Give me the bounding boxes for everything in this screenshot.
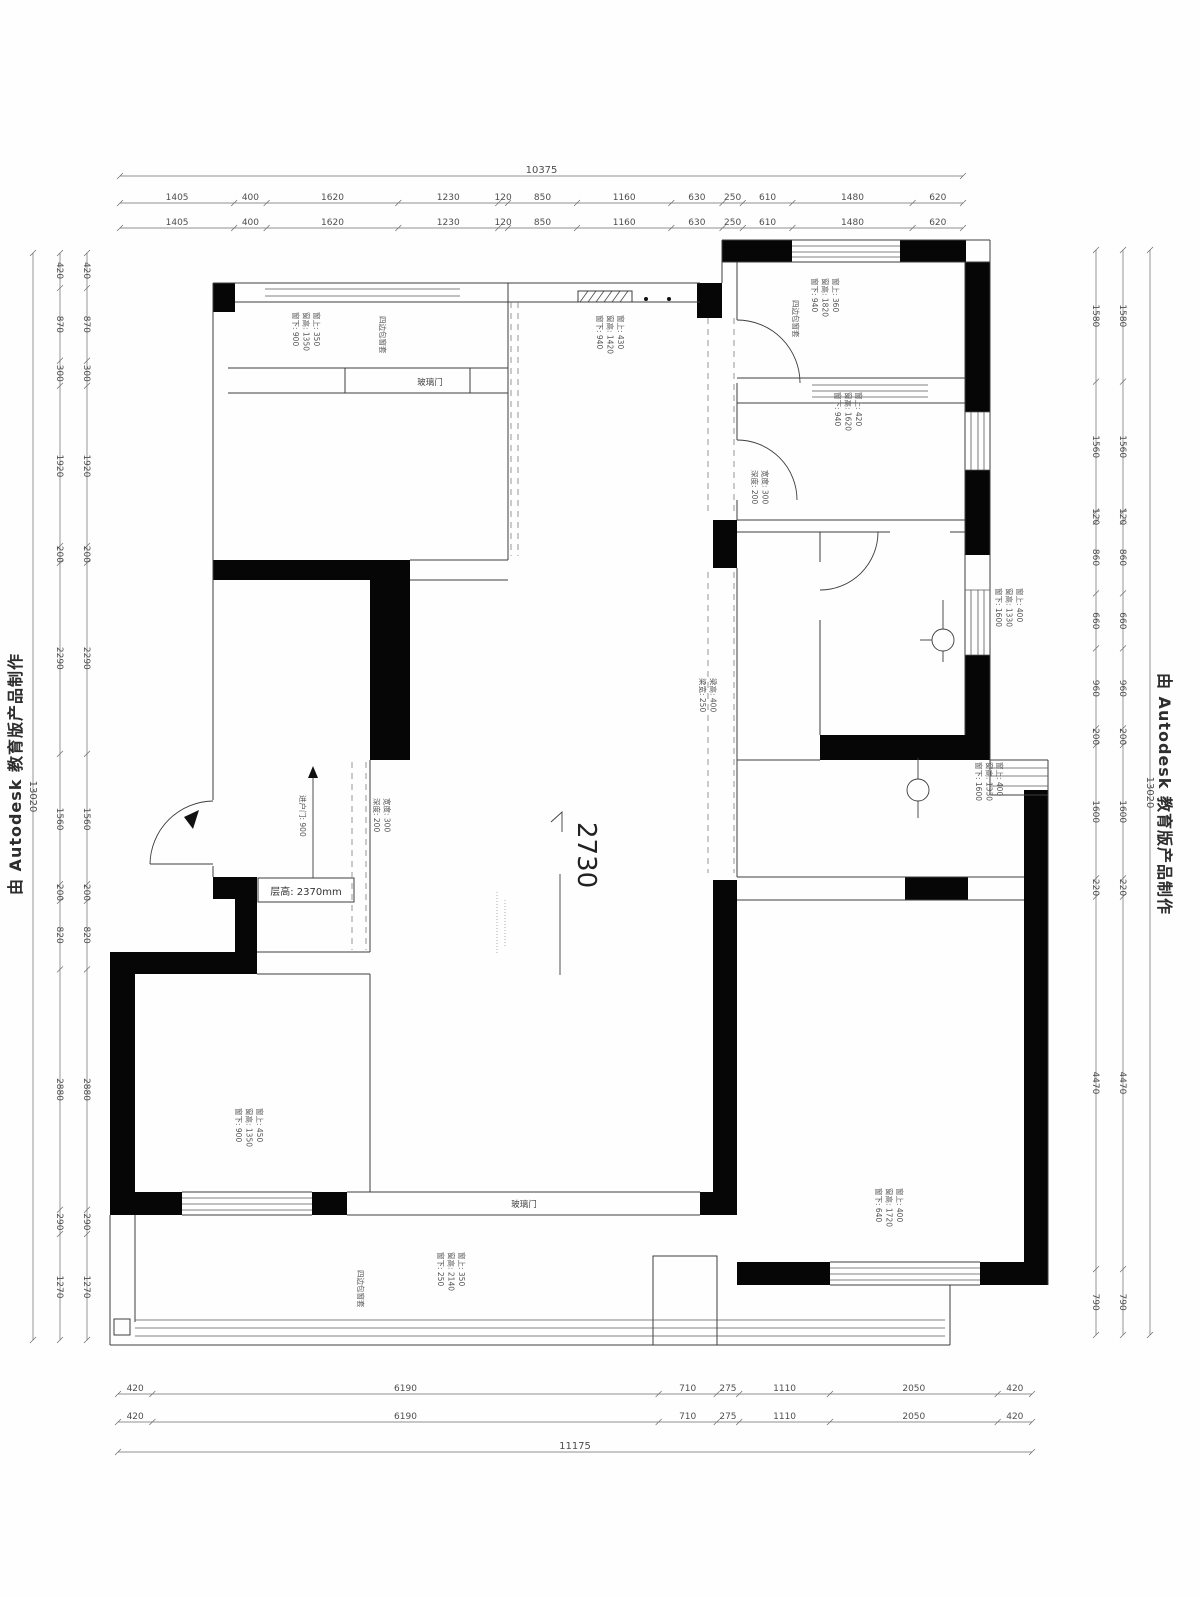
casing-note-top-right: 四边包窗套	[791, 300, 801, 338]
annotation-text: 窗下: 640	[874, 1188, 884, 1222]
annotation-text: 窗上: 430	[616, 315, 626, 349]
casing-note-top-left: 四边包窗套	[378, 316, 388, 354]
annotation-text: 窗高: 1330	[985, 762, 995, 801]
dim-label: 1230	[437, 218, 460, 228]
curtain-box-note-hall: 宽度: 300深度: 200	[372, 798, 393, 832]
entry-arrow-icon	[184, 810, 199, 829]
door-arc	[820, 532, 878, 590]
dim-label: 870	[81, 316, 91, 333]
floor-plan-svg: 10375 1405400162012301208501160630250610…	[0, 0, 1200, 1598]
dim-label: 420	[54, 262, 64, 279]
dim-chain-left-1: 4208703001920200229015602008202880290127…	[54, 250, 64, 1343]
dim-label: 790	[1117, 1293, 1127, 1310]
annotation-text: 窗上: 420	[854, 392, 864, 426]
dim-label: 1480	[841, 218, 864, 228]
dim-label: 1160	[613, 218, 636, 228]
dim-label: 1600	[1117, 800, 1127, 823]
dim-label: 1620	[321, 218, 344, 228]
dim-label: 420	[1006, 1412, 1023, 1422]
dim-label: 200	[54, 884, 64, 901]
dim-label: 1270	[81, 1276, 91, 1299]
dim-chain-bottom-2: 420619071027511102050420	[115, 1412, 1035, 1425]
casing-note-balcony: 四边包窗套	[356, 1270, 366, 1308]
dim-label: 400	[242, 218, 259, 228]
dim-label: 2290	[54, 647, 64, 670]
dim-label: 6190	[394, 1412, 417, 1422]
annotation-text: 窗上: 400	[895, 1188, 905, 1222]
dim-label: 1580	[1090, 304, 1100, 327]
dim-label: 2050	[902, 1412, 925, 1422]
annotation-text: 四边包窗套	[791, 300, 801, 338]
window-note-kitchen: 窗上: 430窗高: 1420窗下: 940	[595, 315, 626, 354]
dim-label: 1560	[81, 808, 91, 831]
dim-chain-right-2: 1580156012086066096020016002204470790	[1117, 247, 1127, 1338]
window-note-right-mid-2: 窗上: 400窗高: 1330窗下: 1600	[974, 762, 1005, 801]
dim-label: 960	[1117, 680, 1127, 697]
dim-label: 1110	[773, 1384, 796, 1394]
window-note-top-left: 窗上: 350窗高: 1350窗下: 900	[291, 312, 322, 351]
annotation-text: 窗高: 1330	[1005, 588, 1015, 627]
annotation-text: 窗下: 940	[810, 278, 820, 312]
dim-label: 13020	[1144, 777, 1155, 809]
dim-label: 820	[54, 926, 64, 943]
glass-door-label-bottom: 玻璃门	[511, 1199, 537, 1210]
annotation-text: 窗上: 400	[1015, 588, 1025, 622]
dim-label: 1110	[773, 1412, 796, 1422]
annotation-text: 窗下: 900	[234, 1108, 244, 1142]
dim-chain-right-total: 13020	[1144, 247, 1155, 1338]
dim-label: 1600	[1090, 800, 1100, 823]
dim-label: 620	[929, 193, 946, 203]
annotation-text: 窗下: 250	[436, 1252, 446, 1286]
dim-label: 630	[688, 193, 705, 203]
dim-label: 420	[127, 1384, 144, 1394]
dim-label: 2880	[81, 1078, 91, 1101]
dim-label: 300	[81, 365, 91, 382]
annotation-text: 宽度: 300	[383, 798, 393, 832]
dim-label: 710	[679, 1412, 696, 1422]
dim-label: 660	[1117, 612, 1127, 629]
dim-label: 860	[1090, 549, 1100, 566]
dim-label: 1920	[54, 454, 64, 477]
annotation-text: 窗高: 1820	[821, 278, 831, 317]
dim-label: 610	[759, 218, 776, 228]
annotation-text: 宽度: 300	[761, 470, 771, 504]
dim-label: 200	[54, 546, 64, 563]
dim-label: 300	[54, 365, 64, 382]
annotation-text: 四边包窗套	[356, 1270, 366, 1308]
annotation-text: 进户门: 900	[298, 795, 308, 837]
annotation-text: 窗下: 1600	[974, 762, 984, 801]
dim-label: 710	[679, 1384, 696, 1394]
window-note-bottom-left: 窗上: 450窗高: 1350窗下: 900	[234, 1108, 265, 1147]
dim-label: 2290	[81, 647, 91, 670]
dim-label: 1920	[81, 454, 91, 477]
annotation-text: 深度: 200	[750, 470, 760, 504]
curtain-box-note-top-right: 宽度: 300深度: 200	[750, 470, 771, 504]
dim-label: 11175	[559, 1441, 591, 1452]
annotation-text: 窗高: 2140	[447, 1252, 457, 1291]
dim-label: 1405	[166, 193, 189, 203]
dim-chain-bottom-total: 11175	[115, 1441, 1035, 1455]
annotation-text: 深度: 200	[372, 798, 382, 832]
dim-label: 660	[1090, 612, 1100, 629]
annotation-text: 窗下: 900	[291, 312, 301, 346]
floor-plan-page: 由 Autodesk 教育版产品制作 由 Autodesk 教育版产品制作	[0, 0, 1200, 1598]
dim-label: 1230	[437, 193, 460, 203]
door-arc	[737, 320, 800, 383]
dim-label: 4470	[1090, 1071, 1100, 1094]
dim-label: 220	[1090, 879, 1100, 896]
dim-chain-left-total: 13020	[27, 250, 38, 1343]
plumbing-symbol	[907, 758, 929, 818]
dim-label: 13020	[27, 781, 38, 813]
dim-label: 820	[81, 926, 91, 943]
dim-label: 870	[54, 316, 64, 333]
annotation-text: 窗上: 350	[312, 312, 322, 346]
annotation-text: 窗上: 350	[457, 1252, 467, 1286]
dim-label: 850	[534, 193, 551, 203]
annotation-text: 窗下: 1600	[994, 588, 1004, 627]
dim-label: 1560	[1090, 435, 1100, 458]
dim-label: 2050	[902, 1384, 925, 1394]
annotation-text: 窗下: 940	[833, 392, 843, 426]
elevation-marker-icon	[551, 812, 562, 832]
dim-chain-bottom-1: 420619071027511102050420	[115, 1384, 1035, 1397]
dim-label: 1480	[841, 193, 864, 203]
dim-label: 200	[81, 546, 91, 563]
dim-label: 120	[1090, 508, 1100, 525]
hatch-pattern	[580, 291, 628, 302]
dim-label: 275	[719, 1384, 736, 1394]
dim-chain-top-2: 1405400162012301208501160630250610148062…	[117, 218, 966, 231]
annotation-text: 窗上: 360	[831, 278, 841, 312]
dim-label: 850	[534, 218, 551, 228]
dim-label: 290	[81, 1213, 91, 1230]
dim-label: 610	[759, 193, 776, 203]
annotation-text: 窗高: 1350	[245, 1108, 255, 1147]
annotation-text: 窗高: 1620	[844, 392, 854, 431]
dim-label: 120	[495, 218, 512, 228]
dim-chain-right-1: 1580156012086066096020016002204470790	[1090, 247, 1100, 1338]
ceiling-height-label: 层高: 2370mm	[270, 885, 341, 898]
dim-label: 1270	[54, 1276, 64, 1299]
dim-label: 1160	[613, 193, 636, 203]
dim-chain-left-2: 4208703001920200229015602008202880290127…	[81, 250, 91, 1343]
dim-label: 860	[1117, 549, 1127, 566]
dim-label: 1405	[166, 218, 189, 228]
dim-label: 420	[127, 1412, 144, 1422]
dim-label: 220	[1117, 879, 1127, 896]
window-note-top-right-upper: 窗上: 360窗高: 1820窗下: 940	[810, 278, 841, 317]
dim-label: 400	[242, 193, 259, 203]
glass-door-label-top: 玻璃门	[417, 377, 443, 388]
dim-label: 960	[1090, 680, 1100, 697]
dim-label: 120	[1117, 508, 1127, 525]
annotation-text: 窗高: 1350	[302, 312, 312, 351]
dim-chain-top-1: 1405400162012301208501160630250610148062…	[117, 193, 966, 206]
dim-label: 1580	[1117, 304, 1127, 327]
dim-label: 4470	[1117, 1071, 1127, 1094]
annotation-text: 四边包窗套	[378, 316, 388, 354]
dim-label: 290	[54, 1213, 64, 1230]
dim-label: 10375	[526, 165, 558, 176]
dim-label: 6190	[394, 1384, 417, 1394]
dim-label: 275	[719, 1412, 736, 1422]
dim-label: 120	[495, 193, 512, 203]
dot-symbol	[644, 297, 648, 301]
elevation-value: 2730	[571, 822, 601, 888]
dim-label: 250	[724, 193, 741, 203]
annotation-text: 窗高: 1720	[885, 1188, 895, 1227]
dim-label: 200	[81, 884, 91, 901]
dim-label: 250	[724, 218, 741, 228]
arrow-head-icon	[308, 766, 318, 778]
dim-label: 200	[1090, 728, 1100, 745]
dim-label: 200	[1117, 728, 1127, 745]
entry-door-arc	[150, 801, 213, 864]
dim-label: 1620	[321, 193, 344, 203]
dim-label: 620	[929, 218, 946, 228]
annotation-text: 窗上: 400	[995, 762, 1005, 796]
dim-label: 2880	[54, 1078, 64, 1101]
dim-label: 420	[1006, 1384, 1023, 1394]
plumbing-symbol	[920, 600, 954, 662]
dim-label: 630	[688, 218, 705, 228]
dim-chain-top-total: 10375	[117, 165, 966, 179]
windows-layer	[135, 246, 1048, 1336]
dim-label: 1560	[54, 808, 64, 831]
annotation-text: 窗上: 450	[255, 1108, 265, 1142]
dim-label: 420	[81, 262, 91, 279]
window-note-top-right-lower: 窗上: 420窗高: 1620窗下: 940	[833, 392, 864, 431]
window-note-balcony: 窗上: 350窗高: 2140窗下: 250	[436, 1252, 467, 1291]
dim-label: 790	[1090, 1293, 1100, 1310]
dot-symbol	[667, 297, 671, 301]
dim-label: 1560	[1117, 435, 1127, 458]
annotation-text: 窗下: 940	[595, 315, 605, 349]
annotation-text: 梁宽: 250	[698, 678, 708, 712]
annotation-text: 窗高: 1420	[606, 315, 616, 354]
entry-door-note: 进户门: 900	[298, 795, 308, 837]
annotation-text: 梁高: 400	[709, 678, 719, 712]
window-note-right-mid: 窗上: 400窗高: 1330窗下: 1600	[994, 588, 1025, 627]
window-note-bottom-right: 窗上: 400窗高: 1720窗下: 640	[874, 1188, 905, 1227]
